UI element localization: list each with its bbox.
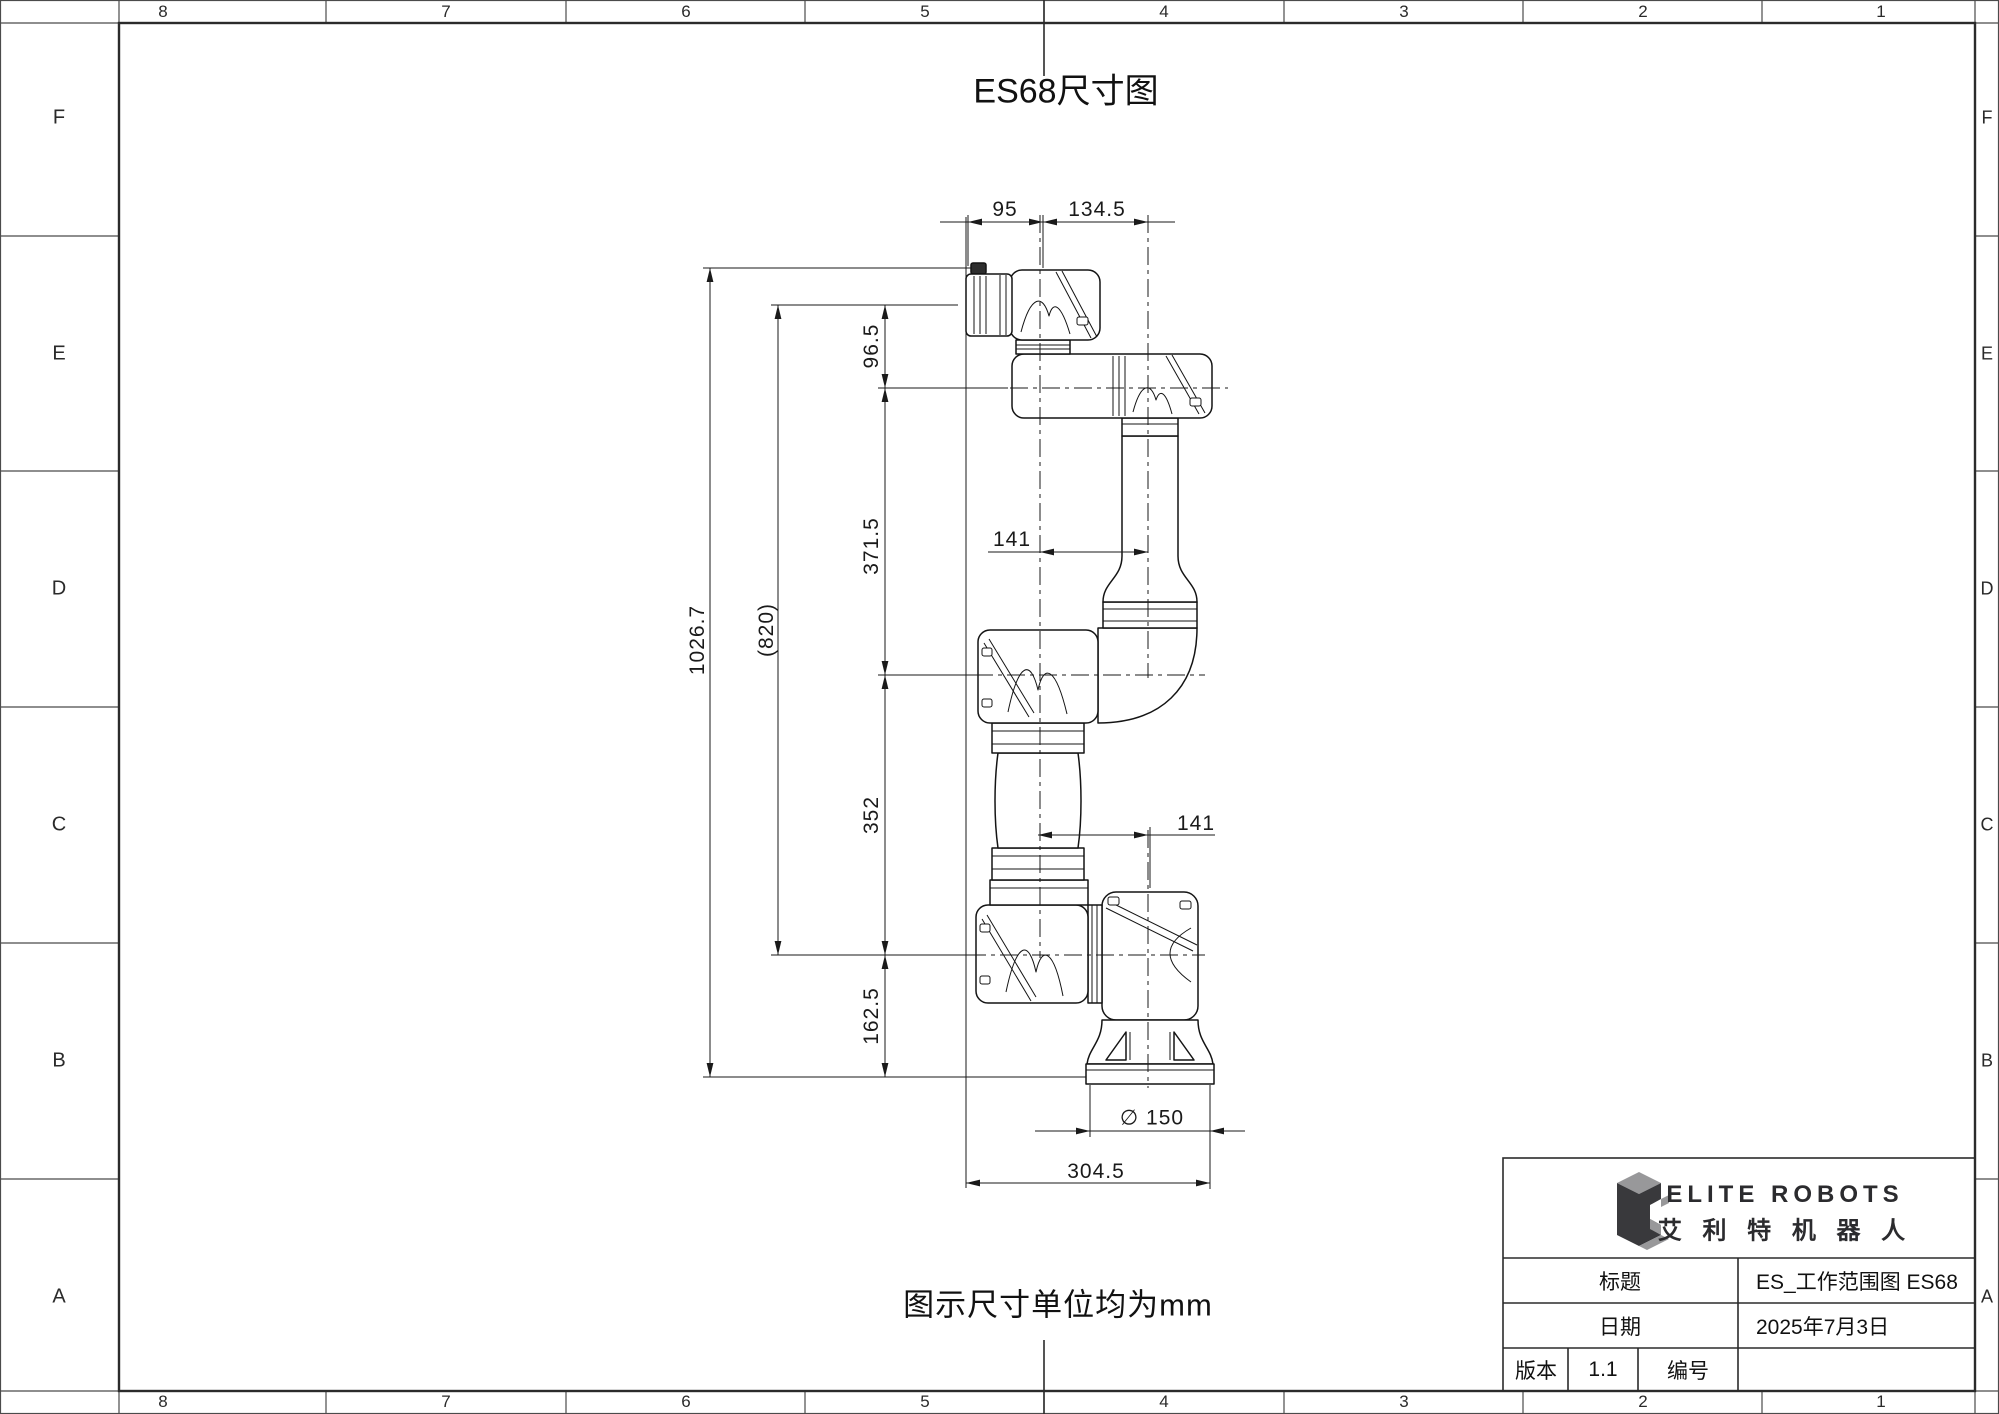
zone-left-d: D [52,578,66,601]
units-note: 图示尺寸单位均为mm [903,1280,1213,1325]
zone-left-a: A [52,1286,65,1309]
zone-right-d: D [1981,579,1994,600]
zone-right-e: E [1981,344,1993,365]
zone-bottom-1: 1 [1876,1392,1885,1412]
zone-top-3: 3 [1399,2,1408,22]
zone-left-b: B [52,1050,65,1073]
zone-right-f: F [1982,108,1993,129]
dimension-label-1026-7: 1026.7 [686,605,710,675]
zone-bottom-3: 3 [1399,1392,1408,1412]
dimension-label-diameter-150: ∅ 150 [1120,1106,1184,1131]
logo-name-en: ELITE ROBOTS [1666,1181,1903,1209]
zone-left-c: C [52,814,66,837]
zone-left-e: E [52,343,65,366]
robot-arm-outline [966,263,1214,1084]
title-block-version-value: 1.1 [1588,1358,1617,1382]
zone-right-a: A [1981,1287,1993,1308]
zone-top-6: 6 [681,2,690,22]
zone-bottom-5: 5 [920,1392,929,1412]
zone-top-1: 1 [1876,2,1885,22]
dimension-label-134-5: 134.5 [1068,198,1126,222]
zone-right-b: B [1981,1051,1993,1072]
dimension-label-304-5: 304.5 [1067,1160,1125,1184]
dimension-label-820: (820) [755,603,779,657]
title-block-version-label: 版本 [1515,1355,1557,1385]
title-block-date-value: 2025年7月3日 [1756,1311,1889,1341]
dimension-label-371-5: 371.5 [860,517,884,575]
title-block-date-label: 日期 [1599,1311,1641,1341]
zone-bottom-2: 2 [1638,1392,1647,1412]
title-block-title-value: ES_工作范围图 ES68 [1756,1266,1958,1296]
zone-right-c: C [1981,815,1994,836]
zone-bottom-4: 4 [1159,1392,1168,1412]
logo-name-cn: 艾 利 特 机 器 人 [1658,1211,1912,1246]
zone-top-8: 8 [158,2,167,22]
dimension-label-352: 352 [860,796,884,834]
dimension-label-96-5: 96.5 [860,324,884,369]
dimension-label-141-elbow: 141 [1177,812,1215,836]
zone-bottom-7: 7 [441,1392,450,1412]
title-block-number-label: 编号 [1667,1355,1709,1385]
zone-bottom-6: 6 [681,1392,690,1412]
zone-top-4: 4 [1159,2,1168,22]
zone-top-5: 5 [920,2,929,22]
zone-top-7: 7 [441,2,450,22]
dimension-label-162-5: 162.5 [860,987,884,1045]
dimension-label-95: 95 [992,198,1017,222]
zone-bottom-8: 8 [158,1392,167,1412]
zone-top-2: 2 [1638,2,1647,22]
title-block-title-label: 标题 [1599,1266,1641,1296]
drawing-sheet: ES68尺寸图 图示尺寸单位均为mm 95 134.5 96.5 371.5 3… [0,0,1999,1414]
zone-left-f: F [53,107,65,130]
dimension-label-141-wrist: 141 [993,528,1031,552]
drawing-title: ES68尺寸图 [973,64,1158,113]
